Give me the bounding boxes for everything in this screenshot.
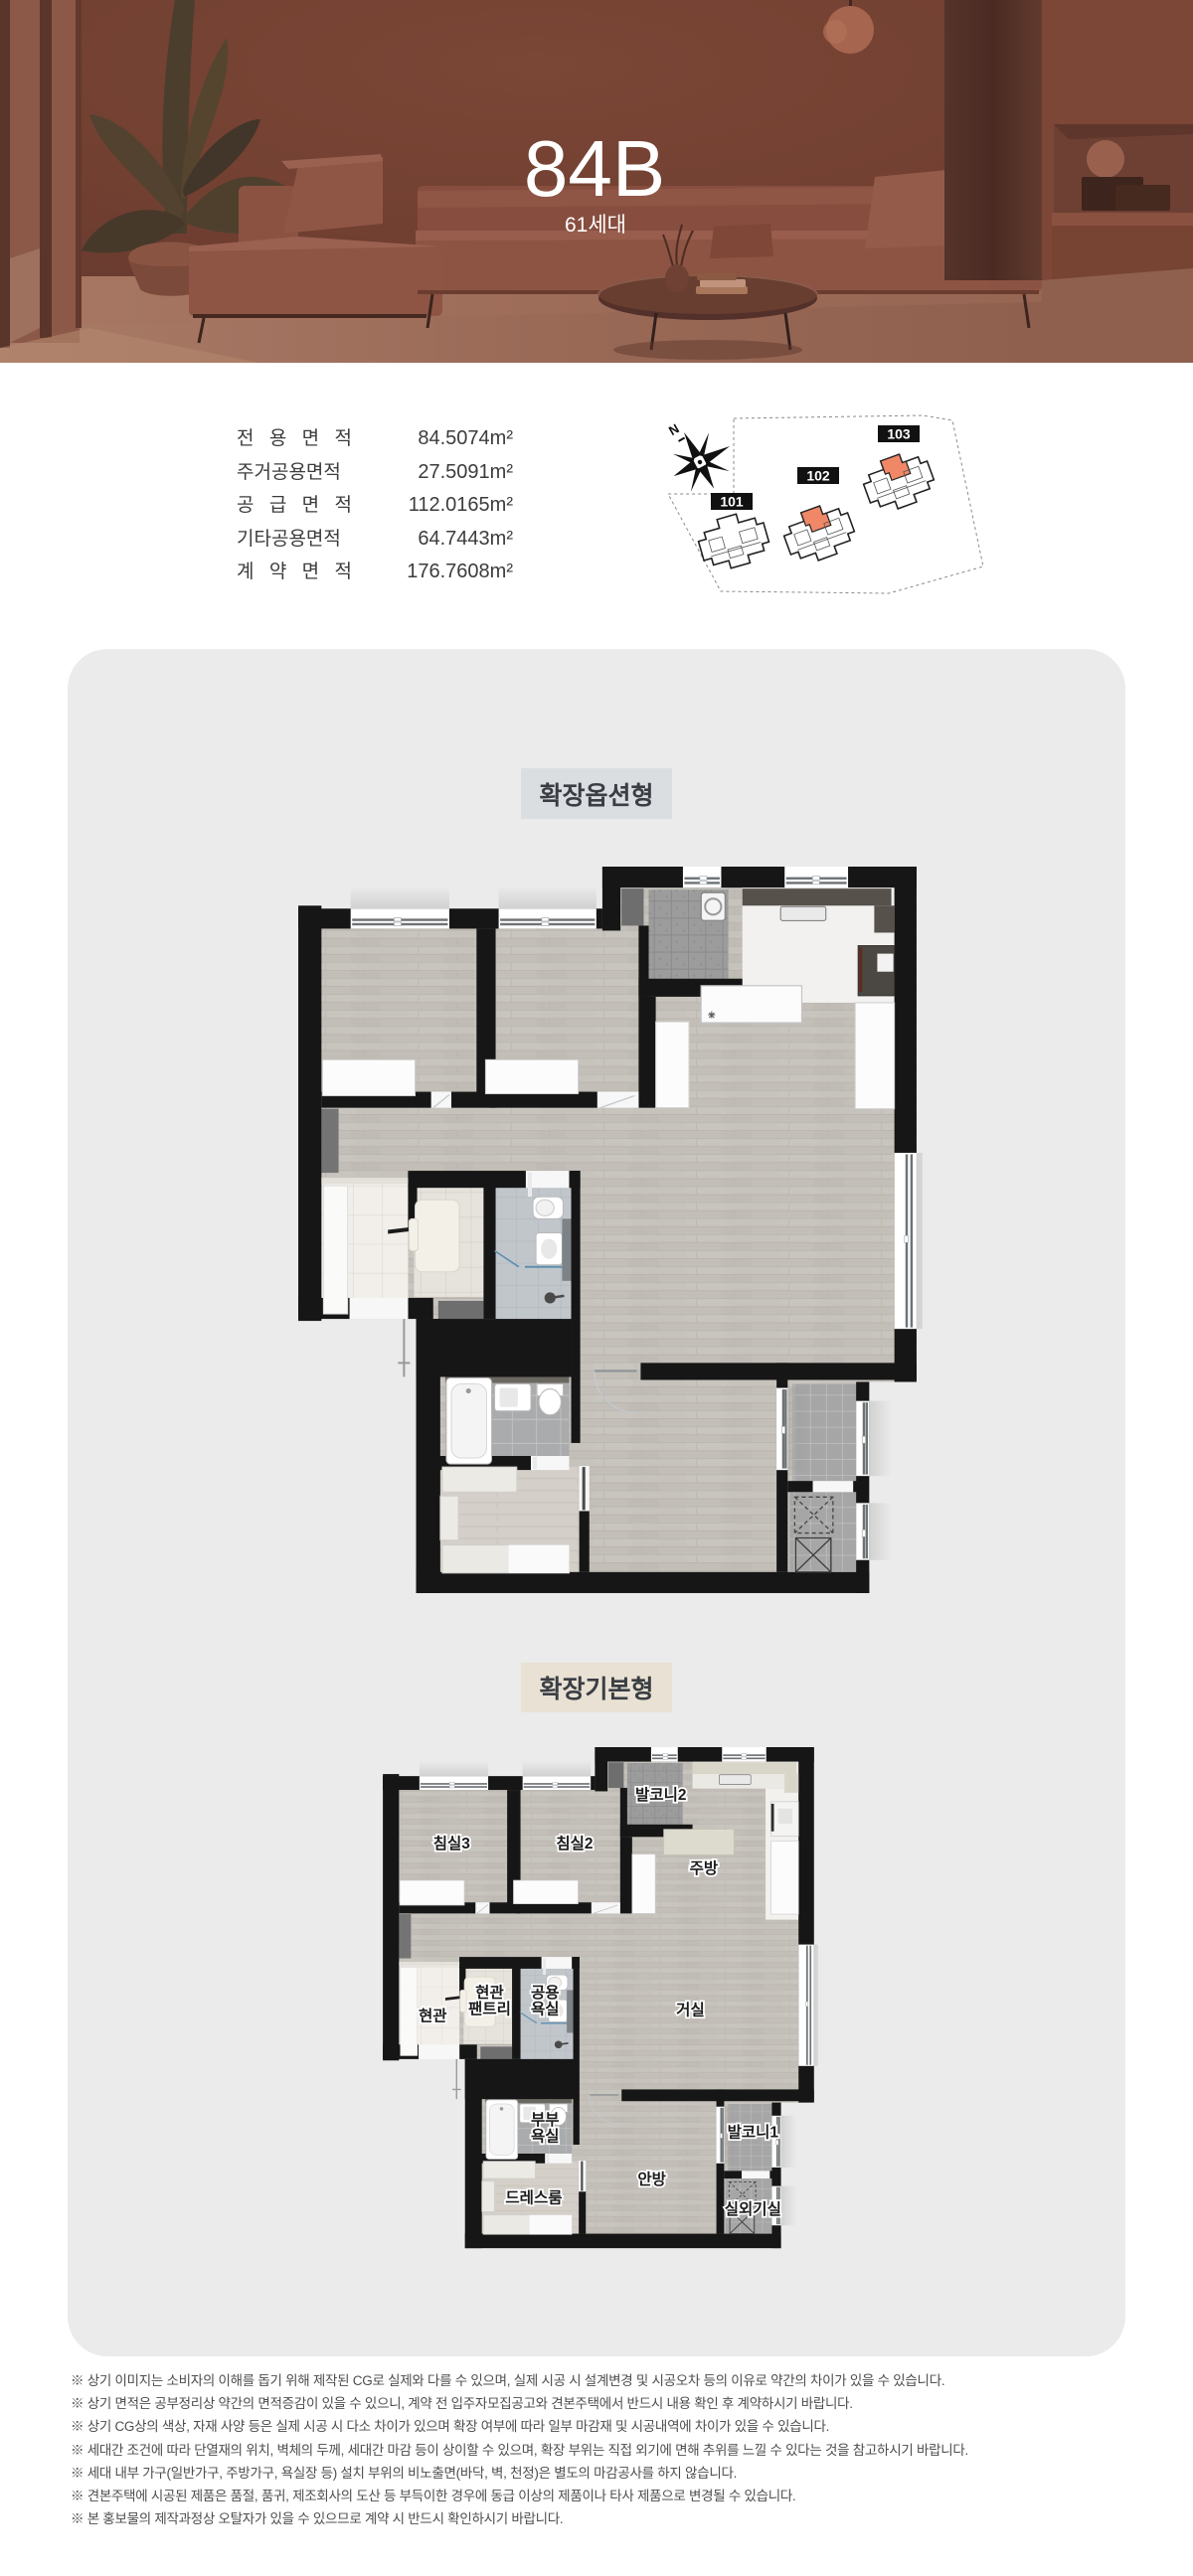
svg-text:욕실: 욕실 — [531, 2001, 560, 2018]
svg-text:공용: 공용 — [531, 1984, 560, 2002]
svg-text:주방: 주방 — [690, 1859, 719, 1877]
svg-text:욕실: 욕실 — [531, 2128, 560, 2146]
svg-text:거실: 거실 — [676, 2002, 705, 2019]
svg-text:현관: 현관 — [475, 1983, 504, 2002]
svg-text:팬트리: 팬트리 — [468, 2001, 511, 2018]
svg-text:N: N — [666, 420, 682, 438]
svg-text:발코니2: 발코니2 — [635, 1786, 686, 1804]
svg-text:현관: 현관 — [419, 2007, 447, 2025]
svg-text:102: 102 — [806, 468, 830, 484]
svg-text:103: 103 — [887, 426, 911, 442]
svg-text:발코니1: 발코니1 — [728, 2123, 779, 2141]
svg-text:안방: 안방 — [637, 2171, 666, 2188]
svg-text:침실2: 침실2 — [556, 1834, 593, 1852]
svg-text:101: 101 — [720, 494, 744, 510]
svg-text:드레스룸: 드레스룸 — [505, 2188, 562, 2206]
svg-text:침실3: 침실3 — [433, 1834, 470, 1852]
svg-text:실외기실: 실외기실 — [725, 2200, 781, 2218]
svg-text:61세대: 61세대 — [565, 214, 626, 237]
svg-text:부부: 부부 — [531, 2111, 560, 2129]
svg-text:84B: 84B — [524, 124, 665, 213]
